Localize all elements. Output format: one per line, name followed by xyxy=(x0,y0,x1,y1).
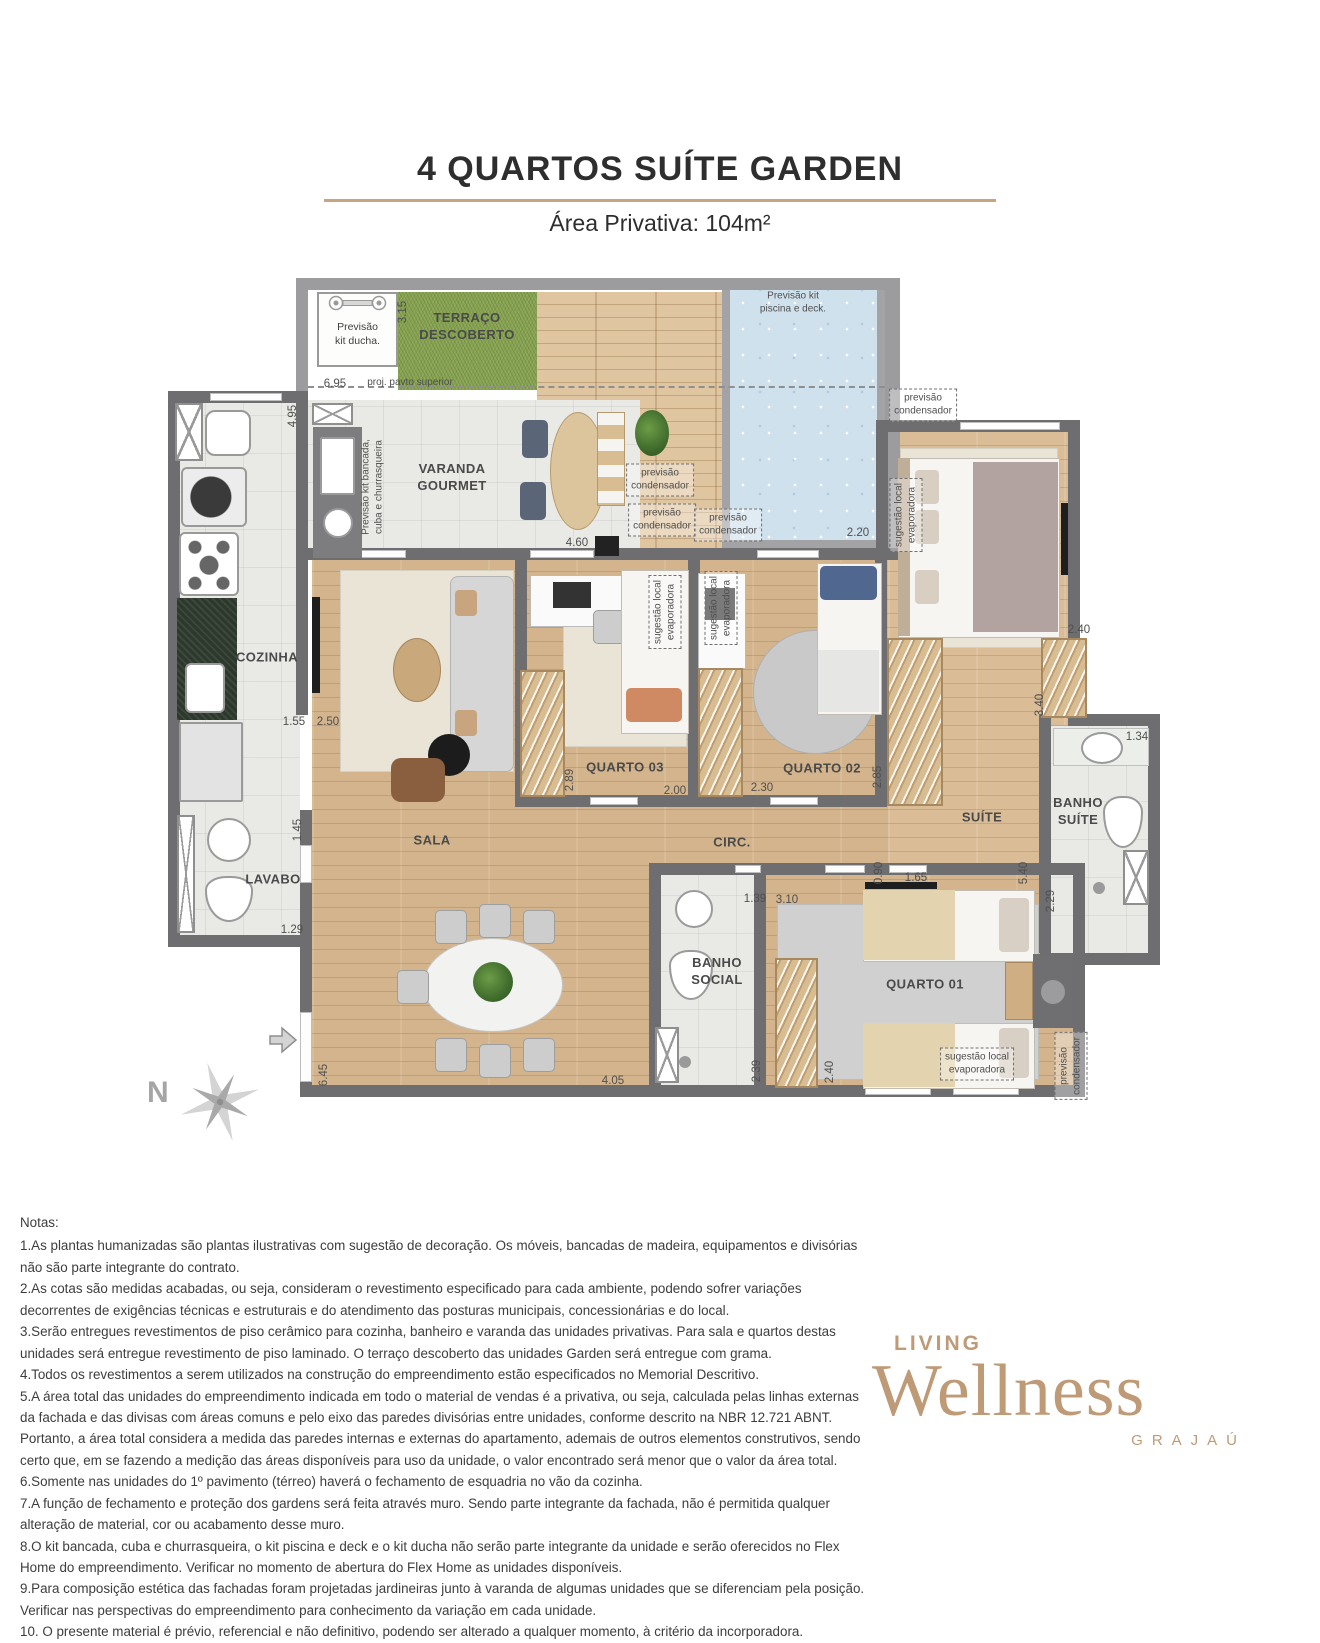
dimension-label: 3.10 xyxy=(776,894,798,906)
entry-door xyxy=(300,1012,312,1082)
pillow xyxy=(915,570,939,604)
towel-counter xyxy=(597,412,625,506)
entry-arrow xyxy=(268,1026,298,1059)
dimension-label: 5.40 xyxy=(1018,862,1030,884)
note-line: 1.As plantas humanizadas são plantas ilu… xyxy=(20,1235,868,1278)
annotation-evaporator: sugestão local evaporadora xyxy=(940,1048,1014,1081)
dimension-label: 2.40 xyxy=(824,1061,836,1083)
blanket xyxy=(973,462,1058,632)
kitchen-sink xyxy=(205,410,251,456)
brand-logo: LIVING Wellness GRAJAÚ xyxy=(872,1332,1254,1449)
shower-kit-label: Previsão kit ducha. xyxy=(319,321,396,348)
dimension-label: 2.50 xyxy=(317,716,339,728)
banho-suite-sink xyxy=(1081,732,1123,764)
compass: N xyxy=(147,1052,267,1152)
annotation-condenser: previsão condensador xyxy=(694,509,762,542)
pillow xyxy=(999,898,1029,952)
wall xyxy=(296,278,897,290)
duct-shaft xyxy=(175,403,203,461)
shower-kit-icon xyxy=(327,294,389,312)
mini-fridge xyxy=(320,437,355,495)
dimension-label: 2.89 xyxy=(564,769,576,791)
title-divider xyxy=(324,199,996,202)
sofa-pillow xyxy=(455,590,477,616)
dining-chair xyxy=(479,1044,511,1078)
grill xyxy=(595,536,619,556)
compass-north-label: N xyxy=(147,1076,169,1110)
wall xyxy=(168,935,312,947)
dimension-label: 2.20 xyxy=(847,527,869,539)
annotation-condenser: previsão condensador xyxy=(626,464,694,497)
logo-grajau: GRAJAÚ xyxy=(872,1432,1254,1449)
wall xyxy=(876,420,888,560)
fridge xyxy=(179,722,243,802)
washing-machine xyxy=(181,467,247,527)
dimension-label: 2.85 xyxy=(872,766,884,788)
page: { "header": { "title": "4 QUARTOS SUÍTE … xyxy=(0,0,1320,1600)
note-line: 6.Somente nas unidades do 1º pavimento (… xyxy=(20,1471,868,1492)
wardrobe-quarto-02 xyxy=(698,668,743,797)
shower-drain xyxy=(679,1056,691,1068)
blanket xyxy=(863,890,955,960)
annotation-condenser: previsão condensador xyxy=(628,504,696,537)
note-line: 4.Todos os revestimentos a serem utiliza… xyxy=(20,1364,868,1385)
varanda-chair xyxy=(522,420,548,458)
wall xyxy=(754,875,766,1085)
plan-element xyxy=(268,1026,298,1054)
shower-box xyxy=(1123,850,1149,905)
dimension-label: 4.95 xyxy=(287,405,299,427)
compass-rose-icon xyxy=(167,1046,273,1159)
notes: Notas: 1.As plantas humanizadas são plan… xyxy=(20,1212,868,1643)
annotation-kit-bancada: Previsão kit bancada, cuba e churrasquei… xyxy=(361,439,386,535)
banho-social-sink xyxy=(675,890,713,928)
table-plant xyxy=(473,962,513,1002)
dining-chair xyxy=(435,1038,467,1072)
wardrobe-suite xyxy=(1041,638,1087,718)
dimension-label: 1.39 xyxy=(744,893,766,905)
window xyxy=(210,393,282,401)
shower-kit-box: Previsão kit ducha. xyxy=(317,292,398,367)
lavabo-sink xyxy=(207,818,251,862)
dimension-label: 2.30 xyxy=(751,782,773,794)
annotation-evaporator: sugestão local evaporadora xyxy=(649,575,682,649)
wardrobe-suite xyxy=(887,638,943,806)
annotation-condenser: previsão condensador xyxy=(889,389,957,422)
door-lavabo xyxy=(300,845,312,883)
dimension-label: 1.34 xyxy=(1126,731,1148,743)
room-label-banho-social: BANHO SOCIAL xyxy=(691,955,743,989)
stove xyxy=(179,532,239,596)
room-label-sala: SALA xyxy=(414,833,451,850)
dimension-label: 4.05 xyxy=(602,1075,624,1087)
dimension-label: 6.45 xyxy=(318,1064,330,1086)
shower-drain xyxy=(1093,882,1105,894)
notes-heading: Notas: xyxy=(20,1212,868,1233)
dining-chair xyxy=(523,1038,555,1072)
sofa-pillow xyxy=(455,710,477,736)
wall xyxy=(1039,714,1051,953)
window xyxy=(530,550,594,558)
annotation-evaporator: sugestão local evaporadora xyxy=(890,478,923,552)
dimension-label: 1.45 xyxy=(292,819,304,841)
dimension-label: 1.65 xyxy=(905,872,927,884)
dimension-label: 2.29 xyxy=(1045,890,1057,912)
laptop xyxy=(553,582,591,608)
pillow xyxy=(626,688,682,722)
floor-plan: Previsão kit ducha. xyxy=(165,270,1165,1130)
plan-element xyxy=(270,1028,296,1052)
note-line: 3.Serão entregues revestimentos de piso … xyxy=(20,1321,868,1364)
dimension-label: 2.40 xyxy=(1068,624,1090,636)
bbq-sink xyxy=(323,508,353,538)
shower-box xyxy=(655,1027,679,1083)
dimension-label: 3.15 xyxy=(397,301,409,323)
room-label-varanda: VARANDA GOURMET xyxy=(417,461,486,495)
dimension-label: 0.90 xyxy=(873,862,885,884)
door-quarto-01 xyxy=(825,865,865,873)
dimension-label: 1.55 xyxy=(283,716,305,728)
window xyxy=(960,422,1060,430)
room-label-terraco: TERRAÇO DESCOBERTO xyxy=(419,310,515,344)
annotation-condenser: previsão condensador xyxy=(1055,1032,1088,1100)
door-quarto-03 xyxy=(590,797,638,805)
blanket xyxy=(818,650,879,712)
duct-shaft xyxy=(312,403,353,425)
door-quarto-02 xyxy=(770,797,818,805)
room-label-circ: CIRC. xyxy=(713,835,750,852)
tv xyxy=(1061,503,1068,575)
nightstand xyxy=(1005,962,1033,1020)
plan-element xyxy=(333,301,338,306)
dimension-label: 1.29 xyxy=(281,924,303,936)
room-label-banho-suite: BANHO SUÍTE xyxy=(1053,795,1103,829)
counter-sink xyxy=(185,663,225,713)
wall xyxy=(296,278,308,392)
page-subtitle: Área Privativa: 104m² xyxy=(0,210,1320,237)
dimension-label: 2.00 xyxy=(664,785,686,797)
duct-shaft xyxy=(177,815,195,933)
tv xyxy=(312,597,320,693)
dimension-label: 4.60 xyxy=(566,537,588,549)
dimension-label: 3.40 xyxy=(1034,694,1046,716)
note-line: 2.As cotas são medidas acabadas, ou seja… xyxy=(20,1278,868,1321)
dimension-label: 6.95 xyxy=(324,378,346,390)
pillow xyxy=(820,566,877,600)
window xyxy=(757,550,819,558)
notes-list: 1.As plantas humanizadas são plantas ilu… xyxy=(20,1235,868,1642)
dining-chair xyxy=(479,904,511,938)
room-label-suite: SUÍTE xyxy=(962,810,1002,827)
wardrobe-quarto-01 xyxy=(775,958,818,1088)
room-label-quarto-02: QUARTO 02 xyxy=(783,761,861,778)
door-banho-social xyxy=(735,865,761,873)
dining-chair xyxy=(397,970,429,1004)
plan-element xyxy=(376,301,381,306)
wardrobe-quarto-03 xyxy=(520,670,565,797)
logo-wellness: Wellness xyxy=(872,1354,1254,1428)
room-label-quarto-03: QUARTO 03 xyxy=(586,760,664,777)
note-line: 5.A área total das unidades do empreendi… xyxy=(20,1386,868,1472)
dining-chair xyxy=(435,910,467,944)
armchair xyxy=(391,758,445,802)
stool xyxy=(1041,980,1065,1004)
annotation-proj-pavto: proj. pavto superior xyxy=(367,377,453,390)
plant xyxy=(635,410,669,456)
page-title: 4 QUARTOS SUÍTE GARDEN xyxy=(0,150,1320,189)
coffee-table xyxy=(393,638,441,702)
note-line: 8.O kit bancada, cuba e churrasqueira, o… xyxy=(20,1536,868,1579)
header: 4 QUARTOS SUÍTE GARDEN Área Privativa: 1… xyxy=(0,150,1320,237)
dining-chair xyxy=(523,910,555,944)
dimension-label: 2.39 xyxy=(751,1060,763,1082)
annotation-kit-piscina: Previsão kit piscina e deck. xyxy=(760,291,826,316)
note-line: 10. O presente material é prévio, refere… xyxy=(20,1621,868,1642)
note-line: 7.A função de fechamento e proteção dos … xyxy=(20,1493,868,1536)
plan-element xyxy=(343,301,372,306)
room-label-quarto-01: QUARTO 01 xyxy=(886,977,964,994)
wall xyxy=(1148,714,1160,965)
annotation-evaporator: sugestão local evaporadora xyxy=(705,571,738,645)
varanda-chair xyxy=(520,482,546,520)
room-label-cozinha: COZINHA xyxy=(236,650,298,667)
room-label-lavabo: LAVABO xyxy=(245,872,300,889)
